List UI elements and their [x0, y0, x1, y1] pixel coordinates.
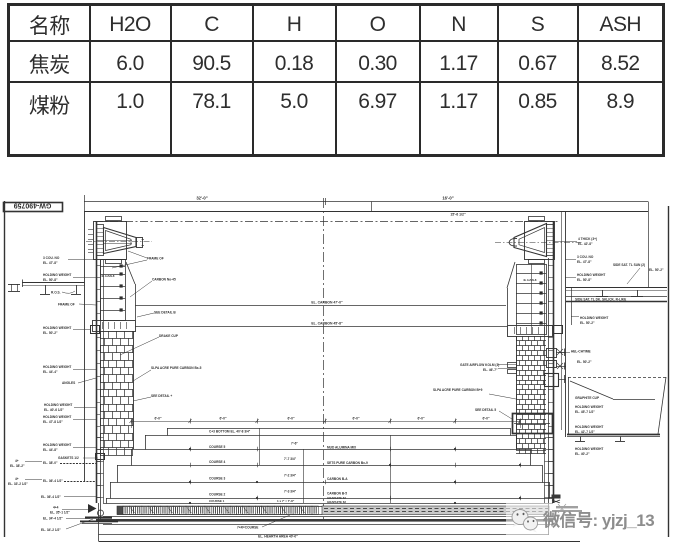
svg-text:微信号: yjzj_13: 微信号: yjzj_13 [542, 510, 654, 530]
